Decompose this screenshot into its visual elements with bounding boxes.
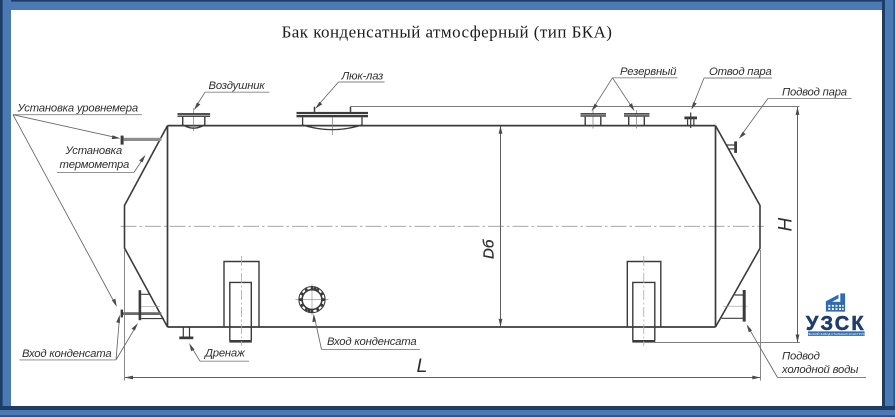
svg-text:Люк-лаз: Люк-лаз bbox=[341, 71, 384, 83]
svg-text:Дренаж: Дренаж bbox=[203, 348, 246, 360]
svg-text:Вход конденсата: Вход конденсата bbox=[327, 336, 416, 348]
svg-text:Резервный: Резервный bbox=[620, 66, 677, 78]
svg-text:Вход конденсата: Вход конденсата bbox=[22, 348, 111, 360]
svg-text:Dб: Dб bbox=[481, 239, 498, 259]
svg-text:L: L bbox=[417, 355, 428, 377]
svg-text:термометра: термометра bbox=[60, 159, 130, 171]
svg-text:Установка: Установка bbox=[65, 145, 122, 157]
svg-text:Установка уровнемера: Установка уровнемера bbox=[17, 102, 138, 114]
svg-text:Подвод: Подвод bbox=[782, 351, 820, 363]
svg-text:Бак конденсатный атмосферный (: Бак конденсатный атмосферный (тип БКА) bbox=[282, 23, 613, 42]
svg-text:Отвод пара: Отвод пара bbox=[709, 66, 772, 78]
svg-text:холодной воды: холодной воды bbox=[781, 364, 859, 376]
svg-text:Подвод пара: Подвод пара bbox=[782, 87, 847, 99]
svg-text:УРАЛЬСКИЙ ЗАВОД СТАЛЬНЫХ КОНСТ: УРАЛЬСКИЙ ЗАВОД СТАЛЬНЫХ КОНСТРУКЦИЙ bbox=[802, 332, 871, 336]
svg-text:H: H bbox=[776, 218, 797, 232]
svg-text:Воздушник: Воздушник bbox=[209, 80, 266, 92]
